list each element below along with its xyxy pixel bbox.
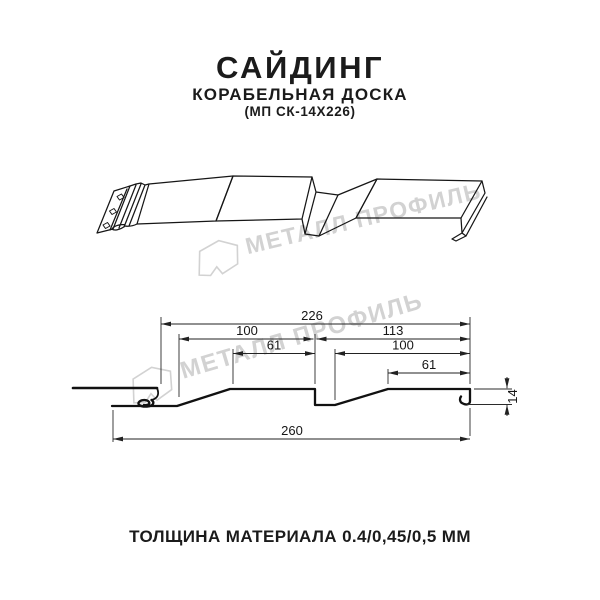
lock-s-curve — [152, 388, 159, 400]
dim-label-100-left: 100 — [236, 323, 258, 338]
profile-outline — [112, 389, 470, 406]
dim-label-226: 226 — [301, 308, 323, 323]
product-drawing-page: САЙДИНГ КОРАБЕЛЬНАЯ ДОСКА (МП СК-14Х226)… — [0, 0, 600, 600]
dim-label-61-right: 61 — [422, 357, 436, 372]
dim-label-14: 14 — [505, 389, 520, 403]
thickness-note: ТОЛЩИНА МАТЕРИАЛА 0.4/0,45/0,5 ММ — [0, 527, 600, 547]
watermark-3d: МЕТАЛЛ ПРОФИЛЬ — [192, 177, 486, 279]
dim-label-100-right: 100 — [392, 338, 414, 353]
dim-label-113: 113 — [383, 323, 404, 338]
brand-logo-icon — [192, 237, 242, 279]
plank1-top-face — [216, 176, 312, 221]
dim-label-260: 260 — [281, 423, 303, 438]
technical-drawing: МЕТАЛЛ ПРОФИЛЬ МЕТАЛЛ ПРОФИЛЬ — [0, 0, 600, 600]
dim-label-61-left: 61 — [267, 338, 281, 353]
plank1-slope-face — [137, 176, 233, 224]
